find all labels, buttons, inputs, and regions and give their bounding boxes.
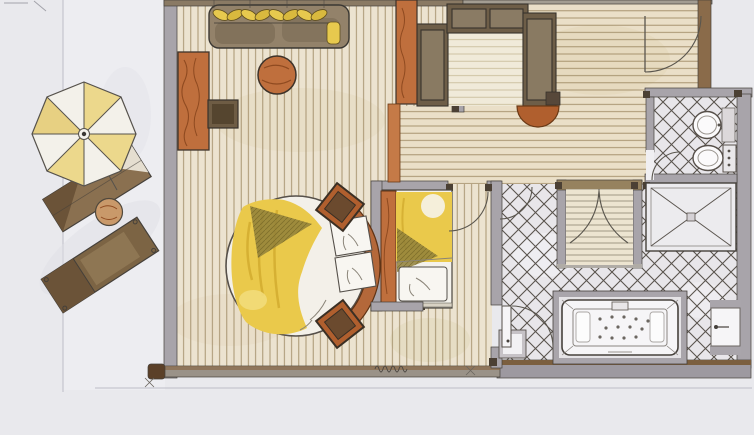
sauna-left-wall: [557, 180, 566, 268]
sauna-right-wall: [633, 180, 642, 268]
storage-niche: [710, 300, 741, 355]
sauna: [566, 189, 633, 265]
floor-plan-drawing: [0, 0, 754, 435]
entry-side-wall: [698, 0, 711, 94]
bathroom-door: [502, 306, 511, 347]
round-bed: [226, 183, 380, 348]
whirlpool-bathtub: [553, 291, 687, 364]
wc-left-wall: [646, 97, 654, 152]
hall-top-wall: [463, 0, 712, 4]
coffee-table: [258, 56, 296, 94]
wc-shower-divider: [645, 174, 737, 183]
shower-drain: [687, 213, 695, 221]
floor-plan-sheet: [0, 0, 754, 435]
single-bed-pillow: [399, 267, 447, 301]
corridor-bath-wall-upper: [491, 181, 502, 305]
tv-unit: [208, 100, 238, 128]
terrace-side-table: [96, 199, 123, 226]
corner-post: [148, 364, 165, 379]
shower: [646, 183, 736, 251]
sauna-top-wall: [557, 180, 642, 190]
washbasin: [693, 108, 735, 142]
second-bedroom: [371, 190, 452, 311]
sofa-daybed: [209, 5, 349, 48]
sideboard: [178, 52, 209, 150]
toilet: [693, 145, 736, 172]
bedroom-left-wall: [164, 0, 177, 378]
